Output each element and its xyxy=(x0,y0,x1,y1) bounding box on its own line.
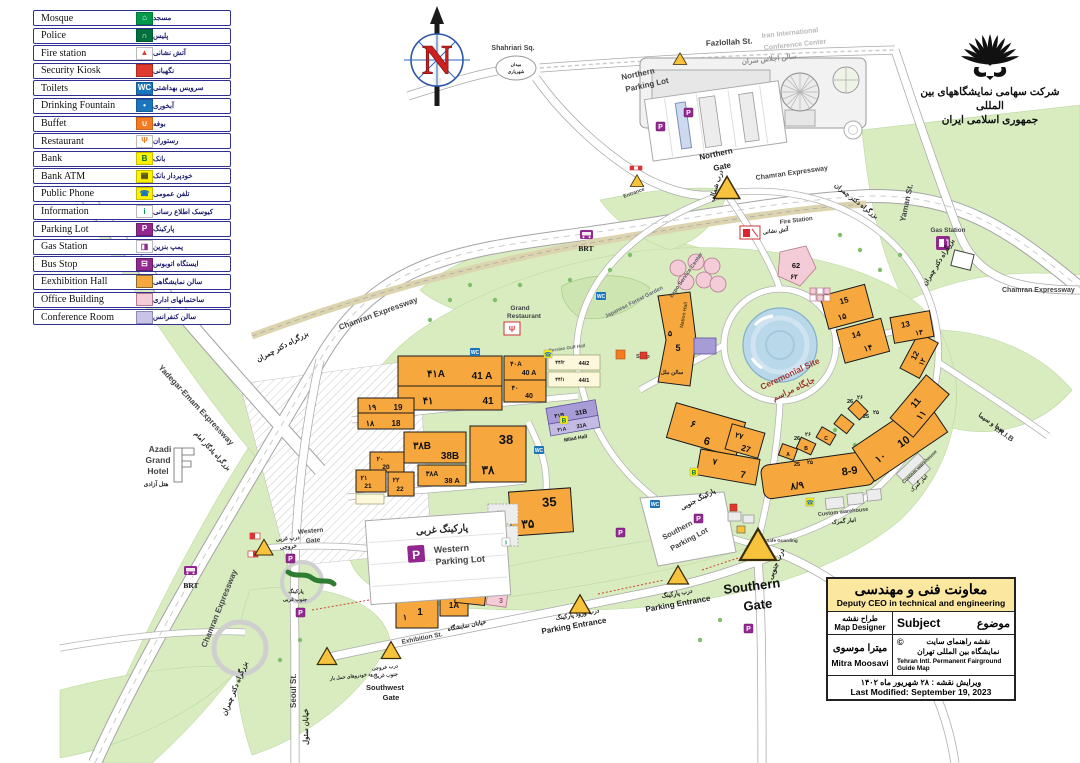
legend-label-fa: پلیس xyxy=(153,32,225,40)
toilets-icon xyxy=(650,500,660,508)
drinking-fountain-icon: • xyxy=(136,99,153,112)
lotus-emblem-icon xyxy=(915,6,1065,80)
legend-label-fa: پمپ بنزین xyxy=(153,243,225,251)
svg-text:3: 3 xyxy=(499,598,503,605)
svg-text:۲۰: ۲۰ xyxy=(377,456,384,463)
legend-row: Bus Stop ⊟ ایستگاه اتوبوس xyxy=(33,256,231,272)
svg-text:22: 22 xyxy=(396,486,404,493)
svg-text:5: 5 xyxy=(675,343,680,353)
legend-label-en: Drinking Fountain xyxy=(41,100,136,111)
svg-text:Gate: Gate xyxy=(383,693,400,702)
legend-label-fa: آبخوری xyxy=(153,102,225,110)
fire-station-icon: ▲ xyxy=(136,47,153,60)
company-name-line2: جمهوری اسلامی ایران xyxy=(905,113,1075,127)
legend-row: Toilets WC سرویس بهداشتی xyxy=(33,80,231,96)
bank-icon xyxy=(560,416,568,425)
shop-icon xyxy=(616,350,625,359)
legend-label-en: Office Building xyxy=(41,294,136,305)
svg-text:۴۴/۲: ۴۴/۲ xyxy=(555,360,565,366)
legend-label-en: Parking Lot xyxy=(41,224,136,235)
svg-text:BRT: BRT xyxy=(578,244,593,253)
deputy-title-en: Deputy CEO in technical and engineering xyxy=(830,598,1012,608)
svg-text:Grand: Grand xyxy=(510,305,529,312)
svg-text:۲۵: ۲۵ xyxy=(873,410,880,416)
legend-label-en: Conference Room xyxy=(41,312,136,323)
hall-19-18: ۱۹ 19 ۱۸ 18 xyxy=(358,398,414,429)
legend-row: Security Kiosk نگهبانی xyxy=(33,63,231,79)
legend-row: Conference Room سالن کنفرانس xyxy=(33,309,231,325)
legend-label-fa: سالن نمایشگاهی xyxy=(153,278,225,286)
svg-text:Shahriari Sq.: Shahriari Sq. xyxy=(491,45,534,52)
buffet-icon: ∪ xyxy=(136,117,153,130)
svg-text:۵: ۵ xyxy=(668,329,673,338)
svg-text:۲۲: ۲۲ xyxy=(393,477,400,484)
svg-text:۳۸B: ۳۸B xyxy=(413,441,431,452)
legend-row: Information i کیوسک اطلاع رسانی xyxy=(33,204,231,220)
deputy-title-fa: معاونت فنی و مهندسی xyxy=(830,581,1012,598)
subject-cell: Subject موضوع xyxy=(893,612,1014,634)
svg-text:جنوب غربی: جنوب غربی xyxy=(283,597,307,603)
svg-text:۴۰: ۴۰ xyxy=(512,385,519,392)
svg-text:Chamran Expressway: Chamran Expressway xyxy=(1002,287,1075,294)
legend-label-fa: کیوسک اطلاع رسانی xyxy=(153,208,225,216)
svg-text:26: 26 xyxy=(794,436,800,442)
svg-text:Chamran Expressway: Chamran Expressway xyxy=(755,165,828,182)
public-phone-icon xyxy=(806,498,814,507)
office-building-icon xyxy=(136,293,153,306)
hall-38b: ۳۸B 38B xyxy=(404,432,466,463)
shahriari-square: Shahriari Sq. میدان شهریاری xyxy=(491,45,536,80)
legend-label-fa: ایستگاه اتوبوس xyxy=(153,260,225,268)
legend-row: Parking Lot P پارکینگ xyxy=(33,221,231,237)
svg-text:40: 40 xyxy=(525,393,533,400)
parking-icon xyxy=(656,122,665,131)
legend-row: Bank B بانک xyxy=(33,151,231,167)
svg-text:Azadi: Azadi xyxy=(149,444,172,454)
svg-text:پارکینگ: پارکینگ xyxy=(288,588,304,595)
svg-text:Gas Station: Gas Station xyxy=(931,227,966,234)
security-kiosk-icon xyxy=(640,352,647,359)
svg-text:۳۸A: ۳۸A xyxy=(426,471,439,478)
svg-text:1A: 1A xyxy=(449,601,459,610)
parking-icon xyxy=(694,514,703,523)
svg-text:Gate: Gate xyxy=(743,596,774,614)
svg-text:44/1: 44/1 xyxy=(579,378,590,384)
svg-text:Southwest: Southwest xyxy=(366,683,404,692)
legend-label-fa: بانک xyxy=(153,155,225,163)
svg-text:8-9: 8-9 xyxy=(841,464,858,478)
toilets-icon: WC xyxy=(136,82,153,95)
fairground-map-page: P WC B ☎ i xyxy=(0,0,1080,763)
legend-label-fa: ساختمانهای اداری xyxy=(153,296,225,304)
svg-text:25: 25 xyxy=(863,414,869,420)
public-phone-icon: ☎ xyxy=(136,187,153,200)
svg-text:62: 62 xyxy=(792,261,800,270)
bank-icon: B xyxy=(136,152,153,165)
western-parking: پارکینگ غربی P Western Parking Lot xyxy=(365,511,511,605)
legend-row: Eexhibition Hall سالن نمایشگاهی xyxy=(33,274,231,290)
administrative-building xyxy=(694,338,716,354)
svg-text:۱۹: ۱۹ xyxy=(368,403,377,412)
legend-row: Office Building ساختمانهای اداری xyxy=(33,292,231,308)
svg-text:BRT: BRT xyxy=(183,581,198,590)
subject-value-cell: © نقشه راهنمای سایت نمایشگاه بین المللی … xyxy=(893,635,1014,675)
security-kiosk-icon xyxy=(730,504,737,511)
svg-text:۲۶: ۲۶ xyxy=(805,432,811,438)
gas-station-icon: ◨ xyxy=(136,240,153,253)
legend-label-en: Bus Stop xyxy=(41,259,136,270)
svg-text:38 A: 38 A xyxy=(444,476,460,485)
bus-stop-icon: ⊟ xyxy=(136,258,153,271)
public-phone-icon xyxy=(544,350,552,359)
toilets-icon xyxy=(596,292,606,300)
legend-label-en: Gas Station xyxy=(41,241,136,252)
svg-text:۸/۹: ۸/۹ xyxy=(789,480,806,493)
legend-label-en: Toilets xyxy=(41,83,136,94)
restaurant-icon: Ψ xyxy=(136,135,153,148)
svg-text:26: 26 xyxy=(847,399,853,405)
parking-lot-icon: P xyxy=(136,223,153,236)
svg-text:۳۸: ۳۸ xyxy=(482,463,495,477)
designer-name-cell: میترا موسوی Mitra Moosavi xyxy=(828,635,893,675)
last-modified-cell: ویرایش نقشه : ۲۸ شهریور ماه ۱۴۰۲ Last Mo… xyxy=(828,676,1014,699)
svg-text:44/2: 44/2 xyxy=(579,361,590,367)
svg-text:۱۳: ۱۳ xyxy=(915,329,924,337)
brt-icon xyxy=(580,230,593,239)
copyright-icon: © xyxy=(897,637,904,657)
bank-atm-icon: ▤ xyxy=(136,170,153,183)
legend-label-en: Security Kiosk xyxy=(41,65,136,76)
svg-text:۴۱: ۴۱ xyxy=(423,396,434,407)
legend-row: Public Phone ☎ تلفن عمومی xyxy=(33,186,231,202)
exhibition-hall-icon xyxy=(136,275,153,288)
svg-text:۳۵: ۳۵ xyxy=(521,516,535,531)
svg-text:آتش نشانی: آتش نشانی xyxy=(762,225,790,236)
svg-text:21: 21 xyxy=(364,483,372,490)
legend-label-fa: سالن کنفرانس xyxy=(153,313,225,321)
legend-label-en: Information xyxy=(41,206,136,217)
legend-label-fa: رستوران xyxy=(153,137,225,145)
azadi-hotel: Azadi Grand Hotel هتل آزادی xyxy=(144,444,194,488)
company-logo: شرکت سهامی نمایشگاههای بین المللی جمهوری… xyxy=(905,6,1075,128)
hall-38: 38 ۳۸ xyxy=(470,426,526,482)
svg-text:38: 38 xyxy=(499,432,513,447)
parking-icon xyxy=(744,624,753,633)
bank-icon xyxy=(690,468,698,477)
information-icon xyxy=(502,538,510,547)
legend-row: Fire station ▲ آتش نشانی xyxy=(33,45,231,61)
svg-text:18: 18 xyxy=(392,419,401,428)
svg-text:C: C xyxy=(824,436,828,442)
svg-text:Grand: Grand xyxy=(145,455,170,465)
svg-text:۴۰A: ۴۰A xyxy=(510,361,522,368)
legend: Mosque ⌂ مسجد Police ∩ پلیس Fire station… xyxy=(33,10,231,327)
svg-text:۴۴/۱: ۴۴/۱ xyxy=(555,377,564,383)
svg-text:P: P xyxy=(412,548,421,563)
legend-label-fa: پارکینگ xyxy=(153,225,225,233)
svg-text:Hotel: Hotel xyxy=(147,466,168,476)
police-icon: ∩ xyxy=(136,29,153,42)
legend-row: Mosque ⌂ مسجد xyxy=(33,10,231,26)
parking-icon xyxy=(296,608,305,617)
info-box-header: معاونت فنی و مهندسی Deputy CEO in techni… xyxy=(828,579,1014,612)
legend-row: Drinking Fountain • آبخوری xyxy=(33,98,231,114)
svg-text:۲۵: ۲۵ xyxy=(807,460,814,466)
legend-row: Police ∩ پلیس xyxy=(33,28,231,44)
svg-text:40 A: 40 A xyxy=(522,370,537,377)
svg-text:35: 35 xyxy=(542,494,557,510)
brt-icon xyxy=(184,566,197,575)
parking-icon xyxy=(616,528,625,537)
legend-label-fa: خودپرداز بانک xyxy=(153,172,225,180)
legend-label-en: Mosque xyxy=(41,13,136,24)
legend-label-en: Fire station xyxy=(41,48,136,59)
legend-label-en: Eexhibition Hall xyxy=(41,276,136,287)
svg-text:20: 20 xyxy=(382,464,390,471)
legend-row: Restaurant Ψ رستوران xyxy=(33,133,231,149)
hall-40-block: ۴۰A 40 A ۴۰ 40 xyxy=(504,356,546,402)
legend-label-en: Bank ATM xyxy=(41,171,136,182)
legend-label-fa: سرویس بهداشتی xyxy=(153,84,225,92)
map-designer-cell: طراح نقشه Map Designer xyxy=(828,612,893,634)
svg-text:25: 25 xyxy=(794,462,800,468)
svg-text:1: 1 xyxy=(417,607,423,618)
svg-text:۲۶: ۲۶ xyxy=(857,395,863,401)
mosque-icon: ⌂ xyxy=(136,12,153,25)
legend-label-fa: مسجد xyxy=(153,14,225,22)
nation-hall-label-fa: سالن ملل xyxy=(661,369,684,376)
seoul-st-label: Seoul St. xyxy=(289,674,298,708)
hall-38a: ۳۸A 38 A xyxy=(418,465,466,486)
toilets-icon xyxy=(470,348,480,356)
svg-text:هتل آزادی: هتل آزادی xyxy=(144,480,169,488)
fazlollah-st-label: Fazlollah St. xyxy=(706,37,753,48)
svg-text:۱۸: ۱۸ xyxy=(366,419,375,428)
svg-text:۴۱A: ۴۱A xyxy=(427,369,445,380)
svg-text:۶۲: ۶۲ xyxy=(790,274,798,281)
svg-text:Gate: Gate xyxy=(306,537,321,545)
svg-text:جنوب غربی: جنوب غربی xyxy=(374,671,399,679)
legend-label-en: Restaurant xyxy=(41,136,136,147)
legend-label-fa: تلفن عمومی xyxy=(153,190,225,198)
parking-icon xyxy=(286,554,295,563)
conference-room-icon xyxy=(136,311,153,324)
compass-north-letter: N xyxy=(422,38,452,84)
svg-text:Iran International: Iran International xyxy=(761,27,818,40)
map-info-box: معاونت فنی و مهندسی Deputy CEO in techni… xyxy=(826,577,1016,701)
svg-text:۲۱: ۲۱ xyxy=(361,475,368,482)
svg-text:A: A xyxy=(786,452,790,458)
toilets-icon xyxy=(534,446,544,454)
svg-text:19: 19 xyxy=(394,403,403,412)
svg-text:38B: 38B xyxy=(441,451,459,462)
legend-row: Gas Station ◨ پمپ بنزین xyxy=(33,239,231,255)
svg-text:۱: ۱ xyxy=(403,613,407,622)
legend-label-en: Buffet xyxy=(41,118,136,129)
security-kiosk-icon xyxy=(136,64,153,77)
legend-label-en: Police xyxy=(41,30,136,41)
restaurant-icon: Ψ xyxy=(509,325,516,334)
legend-row: Bank ATM ▤ خودپرداز بانک xyxy=(33,168,231,184)
southern-parking: پارکینگ جنوبی Southern Parking Lot xyxy=(640,486,736,566)
svg-text:Restaurant: Restaurant xyxy=(507,313,542,320)
legend-label-fa: آتش نشانی xyxy=(153,49,225,57)
information-icon: i xyxy=(136,205,153,218)
legend-label-fa: بوفه xyxy=(153,120,225,128)
legend-label-en: Bank xyxy=(41,153,136,164)
svg-text:Fire Station: Fire Station xyxy=(780,216,814,226)
legend-row: Buffet ∪ بوفه xyxy=(33,116,231,132)
company-name-line1: شرکت سهامی نمایشگاههای بین المللی xyxy=(905,85,1075,113)
svg-text:خیابان سئول: خیابان سئول xyxy=(302,709,310,745)
svg-text:B: B xyxy=(804,446,808,452)
legend-label-en: Public Phone xyxy=(41,188,136,199)
parking-icon xyxy=(684,108,693,117)
svg-text:Safe Guarding: Safe Guarding xyxy=(766,538,798,543)
svg-text:41 A: 41 A xyxy=(472,371,493,382)
legend-label-fa: نگهبانی xyxy=(153,67,225,75)
svg-text:41: 41 xyxy=(482,396,494,407)
